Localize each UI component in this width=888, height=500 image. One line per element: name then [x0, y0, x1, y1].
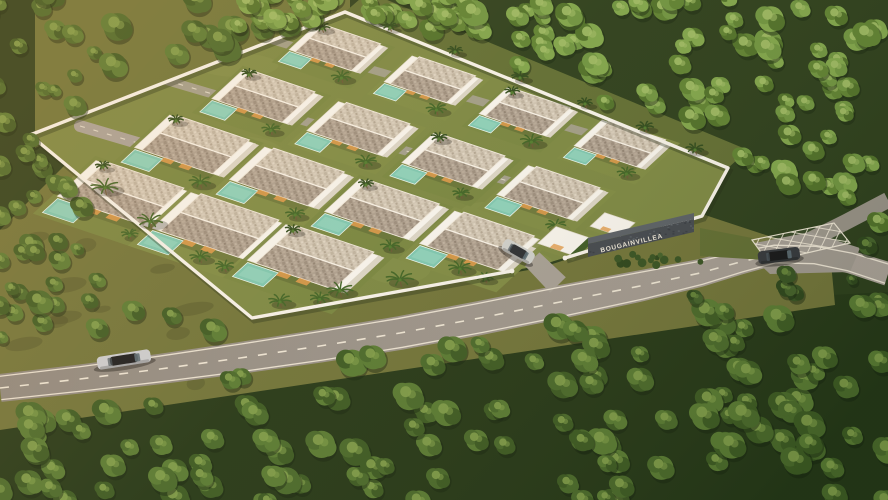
- aerial-render-image: BOUGAINVILLEA: [0, 0, 888, 500]
- scene-canvas: BOUGAINVILLEA: [0, 0, 888, 500]
- warm-light-overlay: [0, 0, 888, 500]
